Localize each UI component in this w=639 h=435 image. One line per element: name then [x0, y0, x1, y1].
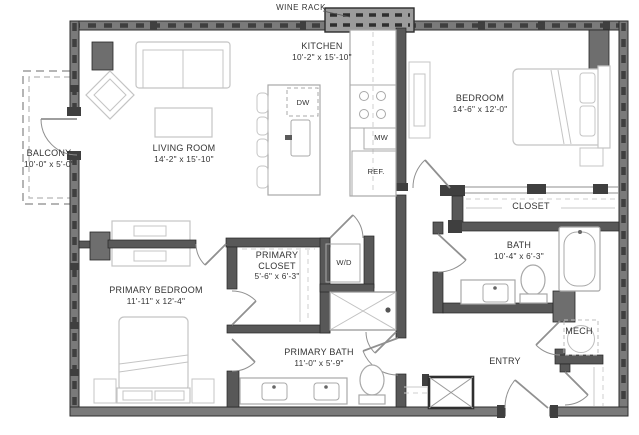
bar-stool — [257, 166, 268, 188]
bathtub — [559, 227, 600, 291]
washer-dryer-door — [330, 215, 363, 238]
room-dims: 14'-6" x 12'-0" — [453, 104, 508, 115]
label-refrigerator: REF. — [367, 167, 384, 178]
label-kitchen: KITCHEN 10'-2" x 15'-10" — [292, 41, 352, 62]
dresser — [409, 62, 430, 138]
wine-rack-label: WINE RACK — [276, 3, 326, 14]
shower-door — [366, 332, 396, 353]
label-primary-bath: PRIMARY BATH 11'-0" x 5'-9" — [284, 347, 354, 368]
label-bedroom: BEDROOM 14'-6" x 12'-0" — [453, 93, 508, 114]
room-name: LIVING ROOM — [153, 143, 216, 154]
room-dims: 10'-0" x 5'-0" — [24, 159, 74, 170]
toilet-tank — [359, 395, 385, 404]
label-primary-bedroom: PRIMARY BEDROOM 11'-11" x 12'-4" — [109, 285, 202, 306]
room-dims: 10'-2" x 15'-10" — [292, 52, 352, 63]
room-name: CLOSET — [512, 201, 550, 212]
bedroom-furniture — [409, 30, 610, 166]
accent-chair — [86, 71, 134, 119]
room-name: PRIMARY CLOSET — [241, 250, 313, 271]
toilet — [521, 265, 545, 295]
room-dims: 10'-4" x 6'-3" — [494, 251, 544, 262]
label-wine-rack: WINE RACK — [276, 3, 326, 14]
coffee-table — [155, 108, 212, 137]
label-bath: BATH 10'-4" x 6'-3" — [494, 240, 544, 261]
sink-faucet — [493, 286, 497, 290]
shower — [330, 292, 396, 330]
floor-plan-drawing — [0, 0, 639, 435]
primary-bedroom-furniture — [94, 317, 214, 403]
label-washer-dryer: W/D — [336, 258, 351, 269]
room-dims: 14'-2" x 15'-10" — [153, 154, 216, 165]
appliance-label: DW — [297, 98, 310, 109]
room-name: BEDROOM — [453, 93, 508, 104]
bath-door — [438, 234, 466, 272]
room-dims: 11'-0" x 5'-9" — [284, 358, 354, 369]
room-name: BATH — [494, 240, 544, 251]
bar-stool — [257, 117, 268, 135]
room-dims: 5'-6" x 6'-3" — [241, 271, 313, 282]
primary-bedroom-door — [196, 244, 226, 265]
shower-head — [385, 307, 390, 312]
label-mech: MECH — [565, 326, 593, 337]
room-name: KITCHEN — [292, 41, 352, 52]
floor-plan: WINE RACK KITCHEN 10'-2" x 15'-10" LIVIN… — [0, 0, 639, 435]
primary-bath-door — [232, 339, 255, 371]
room-name: ENTRY — [489, 356, 521, 367]
bedroom-door — [413, 160, 450, 188]
label-closet: CLOSET — [512, 201, 550, 212]
tub-faucet — [578, 230, 582, 234]
nightstand — [580, 148, 603, 166]
nightstand — [94, 379, 116, 403]
room-name: PRIMARY BEDROOM — [109, 285, 202, 296]
label-microwave: MW — [374, 133, 388, 144]
bar-stool — [257, 139, 268, 157]
bed — [119, 317, 188, 391]
cabinet — [92, 42, 113, 70]
bar-stool — [257, 93, 268, 113]
primary-closet-door — [232, 291, 256, 325]
appliance-label: W/D — [336, 258, 351, 269]
headboard — [598, 66, 610, 148]
island-faucet — [285, 135, 292, 140]
room-dims: 11'-11" x 12'-4" — [109, 296, 202, 307]
label-balcony: BALCONY 10'-0" x 5'-0" — [24, 148, 74, 169]
appliance-label: MW — [374, 133, 388, 144]
room-name: MECH — [565, 326, 593, 337]
living-room-furniture — [86, 42, 230, 137]
headboard — [117, 388, 190, 403]
front-door — [505, 380, 548, 408]
toilet-tank — [520, 294, 547, 303]
nightstand — [192, 379, 214, 403]
appliance-label: REF. — [367, 167, 384, 178]
bath-fixtures — [461, 227, 600, 304]
label-living-room: LIVING ROOM 14'-2" x 15'-10" — [153, 143, 216, 164]
label-entry: ENTRY — [489, 356, 521, 367]
label-primary-closet: PRIMARY CLOSET 5'-6" x 6'-3" — [241, 250, 313, 282]
room-name: PRIMARY BATH — [284, 347, 354, 358]
label-dishwasher: DW — [297, 98, 310, 109]
kitchen-island — [257, 85, 320, 195]
toilet — [360, 365, 384, 395]
room-name: BALCONY — [24, 148, 74, 159]
coat-closet-door — [565, 372, 588, 405]
